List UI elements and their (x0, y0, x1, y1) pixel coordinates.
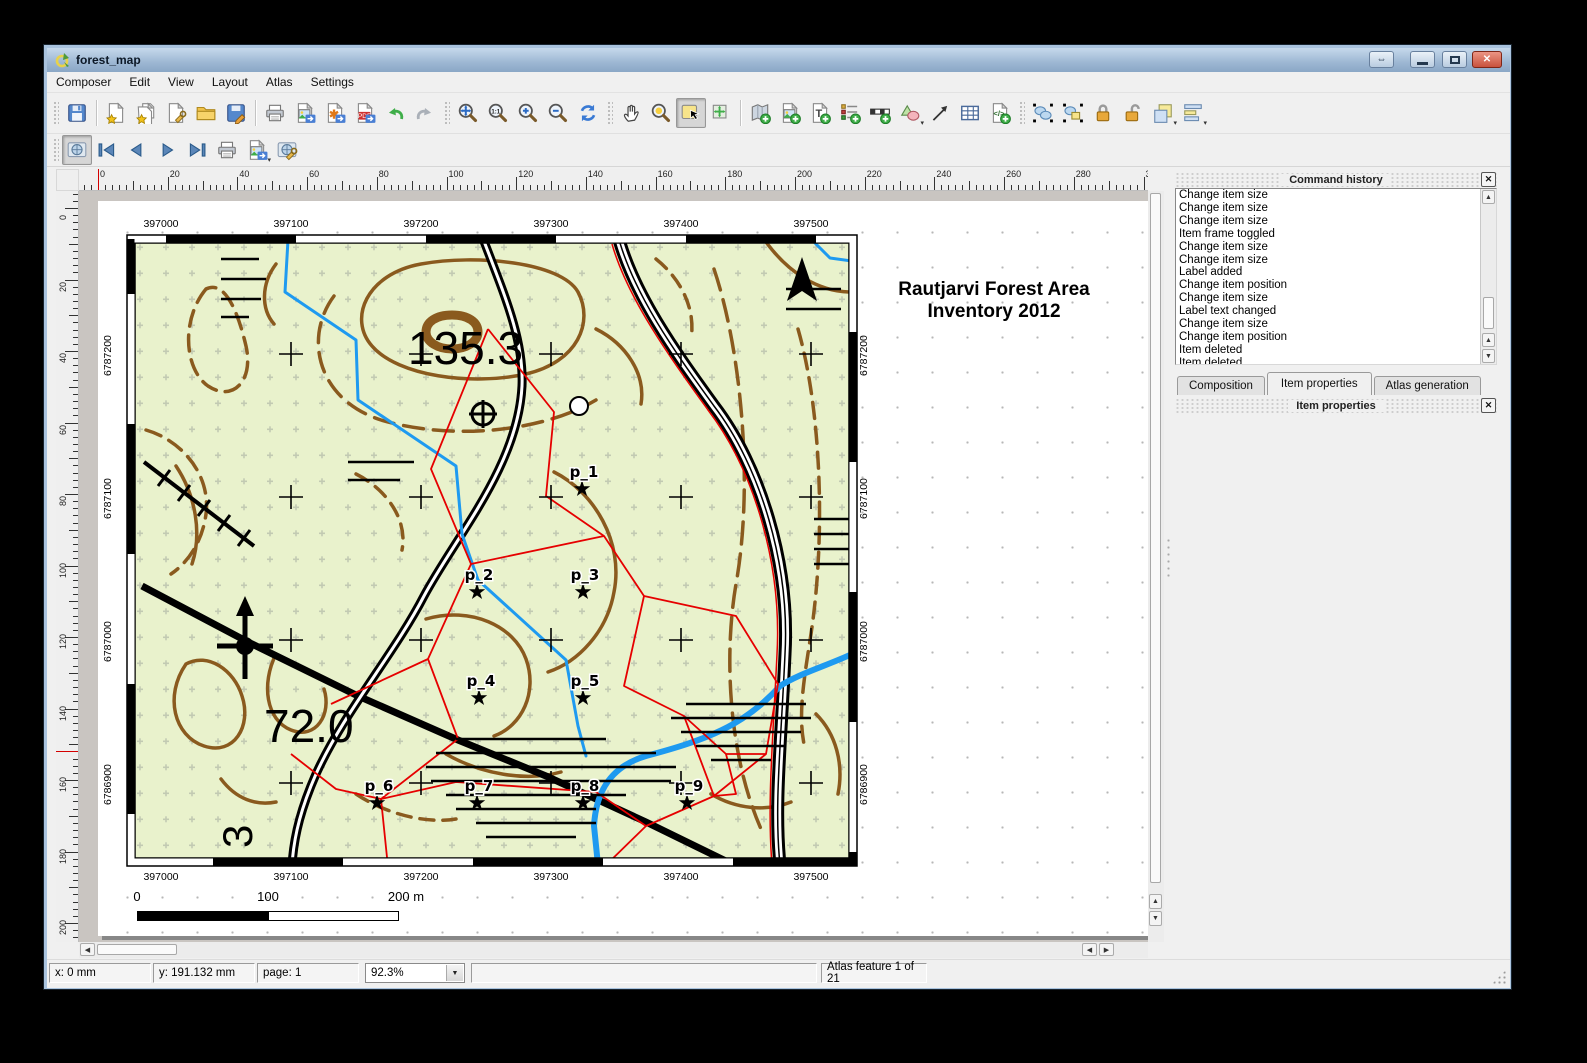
zoom-full-icon (457, 102, 479, 124)
right-dock-panel: Command history ✕ Change item sizeChange… (1173, 169, 1501, 957)
atlas-preview-icon (66, 139, 88, 161)
svg-text:72.0: 72.0 (264, 700, 354, 752)
refresh-view-button[interactable] (573, 98, 603, 128)
grid-y-label: 6787200 (858, 332, 870, 376)
menu-view[interactable]: View (159, 72, 203, 92)
item-properties-close-icon[interactable]: ✕ (1481, 398, 1496, 413)
export-atlas-as-image-button[interactable]: ▾ (242, 135, 272, 165)
move-content-icon (710, 102, 732, 124)
scroll-down-button[interactable]: ▼ (1149, 911, 1162, 926)
refresh-icon (577, 102, 599, 124)
zoom-in-button[interactable] (513, 98, 543, 128)
map-item[interactable]: p_1p_2p_3p_4p_5p_6p_7p_8p_9135.372.03 (126, 234, 858, 867)
export-as-svg-button[interactable]: ✱ (320, 98, 350, 128)
sample-point-label: p_9 (675, 777, 704, 795)
redo-icon (414, 102, 436, 124)
canvas-vertical-scrollbar[interactable]: ▲ ▼ (1148, 191, 1164, 942)
unlock-icon (1122, 102, 1144, 124)
history-item[interactable]: Change item size (1176, 292, 1496, 305)
sample-point-label: p_2 (465, 566, 494, 584)
zoom-region-button[interactable] (646, 98, 676, 128)
group-items-button[interactable] (1028, 98, 1058, 128)
svg-text:135.3: 135.3 (408, 322, 523, 374)
status-y: y: 191.132 mm (153, 963, 255, 983)
sample-point-label: p_6 (365, 777, 394, 795)
load-from-template-button[interactable] (191, 98, 221, 128)
toolbar-separator (255, 100, 256, 126)
sample-point-label: p_3 (571, 566, 600, 584)
grid-x-label: 397100 (256, 871, 326, 883)
status-message (471, 963, 817, 983)
export-image-icon (294, 102, 316, 124)
qgis-icon (55, 52, 71, 68)
add-shape-icon (899, 102, 921, 124)
first-icon (96, 139, 118, 161)
last-feature-button[interactable] (182, 135, 212, 165)
grid-x-label: 397300 (516, 871, 586, 883)
zoom-in-icon (517, 102, 539, 124)
tab-composition[interactable]: Composition (1177, 376, 1265, 395)
sample-point-label: p_8 (571, 777, 600, 795)
restore-arrows-button[interactable]: ⇔ (1369, 51, 1394, 68)
page-wrench-icon (165, 102, 187, 124)
ruler-cursor-marker-y (56, 751, 79, 752)
toolbar-grip (443, 100, 450, 126)
combo-dropdown-icon[interactable]: ▼ (446, 965, 463, 981)
redo-button[interactable] (410, 98, 440, 128)
save-as-template-button[interactable] (221, 98, 251, 128)
ruler-corner (56, 169, 79, 191)
window-title: forest_map (76, 53, 141, 67)
grid-x-label: 397300 (516, 218, 586, 230)
atlas-settings-button[interactable] (272, 135, 302, 165)
save-project-button[interactable] (62, 98, 92, 128)
panel-tabs: CompositionItem propertiesAtlas generati… (1177, 370, 1497, 395)
previous-feature-button[interactable] (122, 135, 152, 165)
command-history-list[interactable]: Change item sizeChange item sizeChange i… (1175, 188, 1497, 365)
svg-text:3: 3 (214, 825, 261, 848)
lock-selected-items-button[interactable] (1088, 98, 1118, 128)
panel-splitter[interactable] (1164, 167, 1173, 959)
export-as-pdf-button[interactable]: PDF (350, 98, 380, 128)
history-item[interactable]: Label added (1176, 266, 1496, 279)
grid-x-label: 397200 (386, 871, 456, 883)
composition-manager-button[interactable] (161, 98, 191, 128)
toolbar-grip (1018, 100, 1025, 126)
add-arrow-button[interactable] (925, 98, 955, 128)
atlas-settings-icon (276, 139, 298, 161)
sample-point-label: p_4 (467, 672, 496, 690)
grid-x-label: 397500 (776, 871, 846, 883)
menu-settings[interactable]: Settings (302, 72, 363, 92)
tab-item-properties[interactable]: Item properties (1267, 372, 1372, 395)
grid-x-label: 397200 (386, 218, 456, 230)
svg-text:1:1: 1:1 (491, 109, 500, 115)
history-item[interactable]: Label text changed (1176, 305, 1496, 318)
unlock-all-items-button[interactable] (1118, 98, 1148, 128)
add-new-map-button[interactable] (745, 98, 775, 128)
group-icon (1032, 102, 1054, 124)
map-title-line2: Inventory 2012 (856, 301, 1132, 323)
history-item[interactable]: Change item size (1176, 241, 1496, 254)
add-image-button[interactable] (775, 98, 805, 128)
status-bar: x: 0 mm y: 191.132 mm page: 1 92.3% ▼ At… (47, 959, 1510, 988)
prev-icon (126, 139, 148, 161)
composer-window: forest_map ⇔ ✕ ComposerEditViewLayoutAtl… (43, 44, 1512, 990)
grid-x-label: 397100 (256, 218, 326, 230)
align-selected-items-button[interactable]: ▾ (1178, 98, 1208, 128)
status-atlas-feature: Atlas feature 1 of 21 (821, 963, 927, 983)
grid-x-label: 397400 (646, 218, 716, 230)
export-pdf-icon: PDF (354, 102, 376, 124)
align-icon (1182, 102, 1204, 124)
item-properties-header: Item properties ✕ (1175, 397, 1497, 414)
history-item[interactable]: Change item size (1176, 254, 1496, 267)
grid-y-label: 6786900 (858, 761, 870, 805)
close-button[interactable]: ✕ (1472, 51, 1502, 68)
menu-edit[interactable]: Edit (120, 72, 159, 92)
folder-icon (195, 102, 217, 124)
add-new-label-button[interactable]: T (805, 98, 835, 128)
move-item-content-button[interactable] (706, 98, 736, 128)
undo-icon (384, 102, 406, 124)
scroll-up-button[interactable]: ▲ (1149, 894, 1162, 909)
add-arrow-icon (929, 102, 951, 124)
grid-y-label: 6787200 (102, 332, 114, 376)
next-feature-button[interactable] (152, 135, 182, 165)
workspace: 0204060801001201401601802002202402602803… (47, 167, 1510, 959)
scroll-right-button[interactable]: ▶ (1099, 943, 1114, 956)
grid-y-label: 6787100 (858, 475, 870, 519)
window-resize-grip[interactable] (1492, 970, 1506, 984)
print-icon (264, 102, 286, 124)
map-title-line1: Rautjarvi Forest Area (856, 279, 1132, 301)
add-html-icon: </> (989, 102, 1011, 124)
print-atlas-button[interactable] (212, 135, 242, 165)
add-legend-icon (839, 102, 861, 124)
item-properties-title: Item properties (1288, 400, 1383, 412)
add-html-frame-button[interactable]: </> (985, 98, 1015, 128)
undo-button[interactable] (380, 98, 410, 128)
zoom-out-icon (547, 102, 569, 124)
zoom-full-button[interactable] (453, 98, 483, 128)
export-image-icon (246, 139, 268, 161)
add-new-scalebar-button[interactable] (865, 98, 895, 128)
horizontal-ruler: 0204060801001201401601802002202402602803… (79, 169, 1148, 191)
scroll-left-button-2[interactable]: ◀ (1082, 943, 1097, 956)
map-title-label[interactable]: Rautjarvi Forest Area Inventory 2012 (856, 279, 1132, 323)
pan-button[interactable] (616, 98, 646, 128)
zoom-level-value: 92.3% (371, 967, 404, 979)
composer-toolbar: ✱PDF1:1T▾</>▾▾ (47, 93, 1510, 134)
sample-point-label: p_1 (570, 463, 599, 481)
history-item[interactable]: Item frame toggled (1176, 228, 1496, 241)
ruler-cursor-marker-x (98, 169, 99, 191)
add-image-icon (779, 102, 801, 124)
grid-x-label: 397000 (126, 218, 196, 230)
add-basic-shape-button[interactable]: ▾ (895, 98, 925, 128)
vertical-ruler: 020406080100120140160180200 (56, 191, 79, 942)
preview-atlas-button[interactable] (62, 135, 92, 165)
toolbar-separator (96, 100, 97, 126)
history-scrollbar[interactable]: ▲ ▲ ▼ (1480, 189, 1496, 364)
select-move-item-button[interactable] (676, 98, 706, 128)
duplicate-composition-button[interactable] (131, 98, 161, 128)
history-item[interactable]: Change item size (1176, 318, 1496, 331)
grid-x-label: 397500 (776, 218, 846, 230)
sample-point-label: p_5 (571, 672, 600, 690)
maximize-button[interactable] (1442, 51, 1467, 68)
command-history-close-icon[interactable]: ✕ (1481, 172, 1496, 187)
ungroup-items-button[interactable] (1058, 98, 1088, 128)
print-icon (216, 139, 238, 161)
composition-canvas[interactable]: p_1p_2p_3p_4p_5p_6p_7p_8p_9135.372.03 (79, 191, 1148, 942)
grid-y-label: 6787100 (102, 475, 114, 519)
add-label-icon: T (809, 102, 831, 124)
pages-star-icon (135, 102, 157, 124)
menu-atlas[interactable]: Atlas (257, 72, 302, 92)
item-properties-body (1175, 415, 1497, 955)
toolbar-grip (606, 100, 613, 126)
command-history-title: Command history (1281, 174, 1391, 186)
toolbar-separator (740, 100, 741, 126)
zoom-level-combo[interactable]: 92.3% ▼ (365, 963, 465, 983)
sample-point-label: p_7 (465, 777, 494, 795)
select-icon (680, 102, 702, 124)
status-x: x: 0 mm (49, 963, 151, 983)
menu-layout[interactable]: Layout (203, 72, 257, 92)
scalebar-graphic (137, 911, 399, 921)
minimize-button[interactable] (1410, 51, 1435, 68)
tab-atlas-generation[interactable]: Atlas generation (1374, 376, 1481, 395)
add-scalebar-icon (869, 102, 891, 124)
zoom-11-icon: 1:1 (487, 102, 509, 124)
scalebar-label: 0 (107, 889, 167, 904)
export-svg-icon: ✱ (324, 102, 346, 124)
history-item[interactable]: Change item size (1176, 202, 1496, 215)
raise-selected-items-button[interactable]: ▾ (1148, 98, 1178, 128)
toolbar-grip (52, 137, 59, 163)
first-feature-button[interactable] (92, 135, 122, 165)
ungroup-icon (1062, 102, 1084, 124)
menu-bar: ComposerEditViewLayoutAtlasSettings (47, 72, 1510, 93)
print-button[interactable] (260, 98, 290, 128)
save-edit-icon (225, 102, 247, 124)
history-item[interactable]: Change item size (1176, 189, 1496, 202)
status-page: page: 1 (257, 963, 359, 983)
next-icon (156, 139, 178, 161)
history-item[interactable]: Change item size (1176, 215, 1496, 228)
zoom-out-button[interactable] (543, 98, 573, 128)
menu-composer[interactable]: Composer (47, 72, 120, 92)
grid-y-label: 6786900 (102, 761, 114, 805)
raise-icon (1152, 102, 1174, 124)
grid-x-label: 397000 (126, 871, 196, 883)
page-star-icon (105, 102, 127, 124)
canvas-horizontal-scrollbar[interactable]: ◀ ◀ ▶ (79, 942, 1148, 958)
history-item[interactable]: Change item position (1176, 279, 1496, 292)
zoom-actual-size-button[interactable]: 1:1 (483, 98, 513, 128)
add-map-icon (749, 102, 771, 124)
scroll-left-button[interactable]: ◀ (80, 943, 95, 956)
add-new-legend-button[interactable] (835, 98, 865, 128)
scalebar-label: 100 (238, 889, 298, 904)
composition-page[interactable]: p_1p_2p_3p_4p_5p_6p_7p_8p_9135.372.03 (98, 201, 1148, 936)
command-history-header: Command history ✕ (1175, 171, 1497, 188)
last-icon (186, 139, 208, 161)
save-icon (66, 102, 88, 124)
grid-y-label: 6787000 (858, 618, 870, 662)
scalebar-label: 200 m (376, 889, 436, 904)
export-as-image-button[interactable] (290, 98, 320, 128)
toolbar-grip (52, 100, 59, 126)
pan-icon (620, 102, 642, 124)
atlas-toolbar: ▾ (47, 134, 1510, 167)
zoom-tool-icon (650, 102, 672, 124)
titlebar[interactable]: forest_map ⇔ ✕ (47, 48, 1510, 72)
history-item[interactable]: Item deleted (1176, 344, 1496, 357)
history-item[interactable]: Item deleted (1176, 357, 1496, 365)
lock-icon (1092, 102, 1114, 124)
grid-x-label: 397400 (646, 871, 716, 883)
add-attribute-table-button[interactable] (955, 98, 985, 128)
add-table-icon (959, 102, 981, 124)
grid-y-label: 6787000 (102, 618, 114, 662)
new-composition-button[interactable] (101, 98, 131, 128)
history-item[interactable]: Change item position (1176, 331, 1496, 344)
